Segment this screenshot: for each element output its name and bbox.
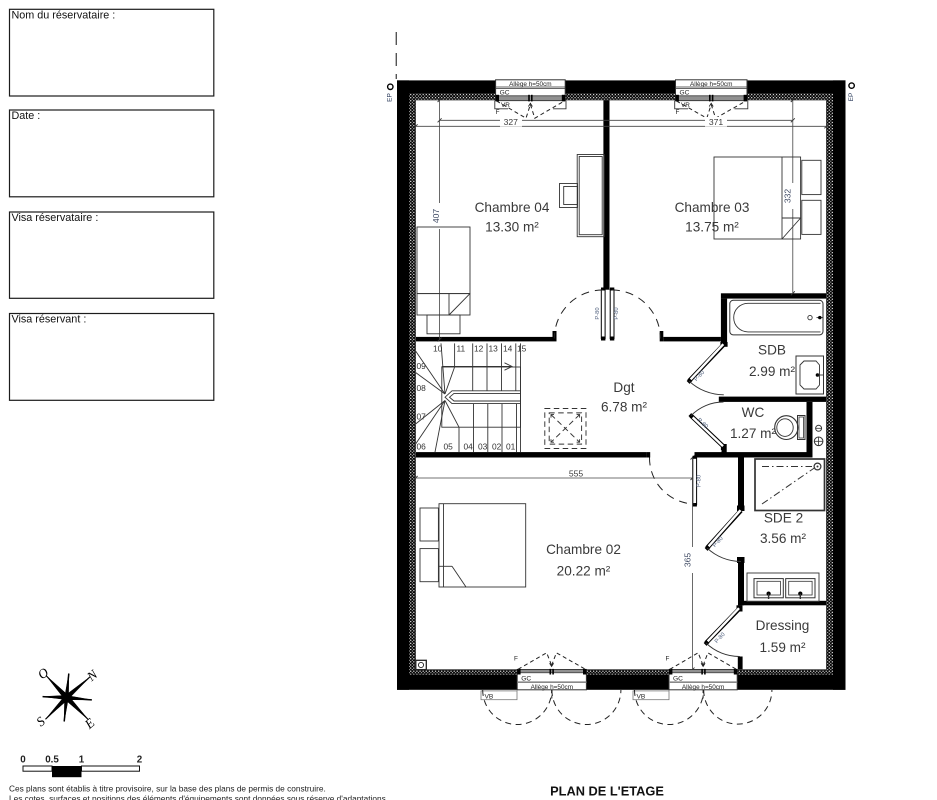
svg-text:F: F [496,109,500,116]
svg-text:EP: EP [387,93,394,102]
svg-text:05: 05 [444,442,454,452]
svg-text:PLAN DE L'ETAGE: PLAN DE L'ETAGE [550,784,664,799]
svg-text:327: 327 [504,117,519,127]
svg-text:13.30 m²: 13.30 m² [485,220,539,235]
svg-text:Chambre 02: Chambre 02 [546,542,621,557]
svg-text:371: 371 [709,117,724,127]
svg-text:555: 555 [569,468,584,478]
svg-text:F: F [666,656,670,663]
svg-text:2: 2 [137,755,143,766]
svg-text:VR: VR [501,102,510,109]
svg-text:Nom du réservataire :: Nom du réservataire : [12,9,116,21]
svg-text:0.5: 0.5 [45,755,59,766]
svg-text:12: 12 [474,344,484,354]
svg-text:P-80: P-80 [614,307,620,319]
svg-text:EP: EP [848,93,855,102]
svg-text:P-80: P-80 [595,307,601,319]
svg-text:1.59 m²: 1.59 m² [759,640,806,655]
svg-text:F: F [514,656,518,663]
svg-text:6.78 m²: 6.78 m² [601,400,648,415]
svg-text:Allège h=50cm: Allège h=50cm [682,684,724,691]
svg-text:Chambre 04: Chambre 04 [475,200,550,215]
svg-text:1: 1 [79,755,85,766]
svg-text:09: 09 [417,361,427,371]
svg-text:Visa réservant :: Visa réservant : [12,314,87,326]
svg-text:03: 03 [478,442,488,452]
svg-text:20.22 m²: 20.22 m² [557,564,611,579]
svg-text:07: 07 [417,412,427,422]
svg-text:Visa réservataire :: Visa réservataire : [12,212,99,224]
svg-text:Date :: Date : [12,110,41,122]
svg-text:13: 13 [489,344,499,354]
svg-text:Dressing: Dressing [756,618,810,633]
svg-text:332: 332 [783,189,793,204]
svg-text:365: 365 [683,553,693,568]
svg-text:Chambre 03: Chambre 03 [675,200,750,215]
svg-text:Dgt: Dgt [613,380,634,395]
svg-text:Les cotes, surfaces et positio: Les cotes, surfaces et positions des élé… [9,793,386,800]
svg-text:F: F [676,109,680,116]
svg-text:11: 11 [457,344,466,354]
svg-text:407: 407 [431,209,441,224]
svg-text:P-80: P-80 [697,475,703,487]
svg-text:08: 08 [417,383,427,393]
svg-text:02: 02 [492,442,502,452]
svg-text:15: 15 [517,344,527,354]
svg-text:VB: VB [485,693,494,700]
svg-text:VB: VB [637,693,646,700]
svg-text:WC: WC [742,405,765,420]
svg-text:2.99 m²: 2.99 m² [749,364,796,379]
svg-text:SDB: SDB [758,343,786,358]
svg-text:04: 04 [464,442,474,452]
svg-text:VR: VR [681,102,690,109]
svg-text:06: 06 [417,442,427,452]
svg-text:1.27 m²: 1.27 m² [730,426,777,441]
svg-text:SDE 2: SDE 2 [764,511,803,526]
svg-text:13.75 m²: 13.75 m² [685,220,739,235]
svg-text:3.56 m²: 3.56 m² [760,531,807,546]
svg-text:Allège h=50cm: Allège h=50cm [531,684,573,691]
svg-text:14: 14 [503,344,513,354]
svg-text:0: 0 [20,755,26,766]
svg-text:01: 01 [506,442,516,452]
svg-text:10: 10 [433,344,443,354]
svg-text:Ces plans sont établis à titre: Ces plans sont établis à titre provisoir… [9,783,326,793]
